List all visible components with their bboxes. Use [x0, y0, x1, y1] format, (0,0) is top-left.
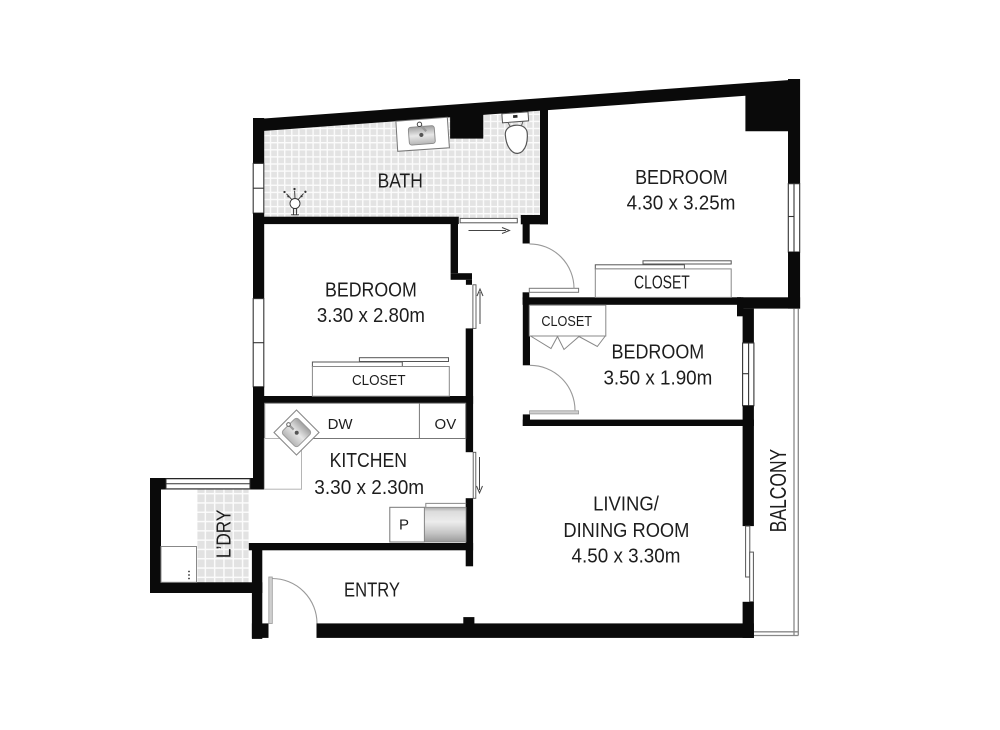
- svg-text:CLOSET: CLOSET: [634, 272, 690, 293]
- svg-text:OV: OV: [435, 416, 457, 433]
- svg-text:KITCHEN: KITCHEN: [330, 450, 407, 472]
- svg-text:BALCONY: BALCONY: [765, 449, 791, 532]
- svg-text:DW: DW: [328, 416, 354, 433]
- svg-text:3.30 x 2.30m: 3.30 x 2.30m: [314, 477, 424, 499]
- svg-text:BEDROOM: BEDROOM: [325, 280, 417, 302]
- svg-text:ENTRY: ENTRY: [344, 580, 400, 602]
- svg-text:BEDROOM: BEDROOM: [635, 167, 728, 189]
- svg-text:DINING ROOM: DINING ROOM: [563, 520, 689, 542]
- svg-text:P: P: [399, 517, 409, 534]
- svg-text:3.30 x 2.80m: 3.30 x 2.80m: [317, 305, 425, 327]
- svg-text:3.50 x 1.90m: 3.50 x 1.90m: [603, 368, 712, 390]
- svg-text:CLOSET: CLOSET: [352, 372, 406, 389]
- svg-text:LIVING/: LIVING/: [593, 494, 659, 516]
- svg-text:BEDROOM: BEDROOM: [612, 341, 705, 363]
- svg-text:CLOSET: CLOSET: [541, 314, 592, 330]
- svg-text:4.30 x 3.25m: 4.30 x 3.25m: [627, 192, 736, 214]
- svg-text:4.50 x 3.30m: 4.50 x 3.30m: [572, 546, 681, 568]
- svg-text:L’DRY: L’DRY: [214, 510, 236, 558]
- svg-text:BATH: BATH: [378, 170, 423, 192]
